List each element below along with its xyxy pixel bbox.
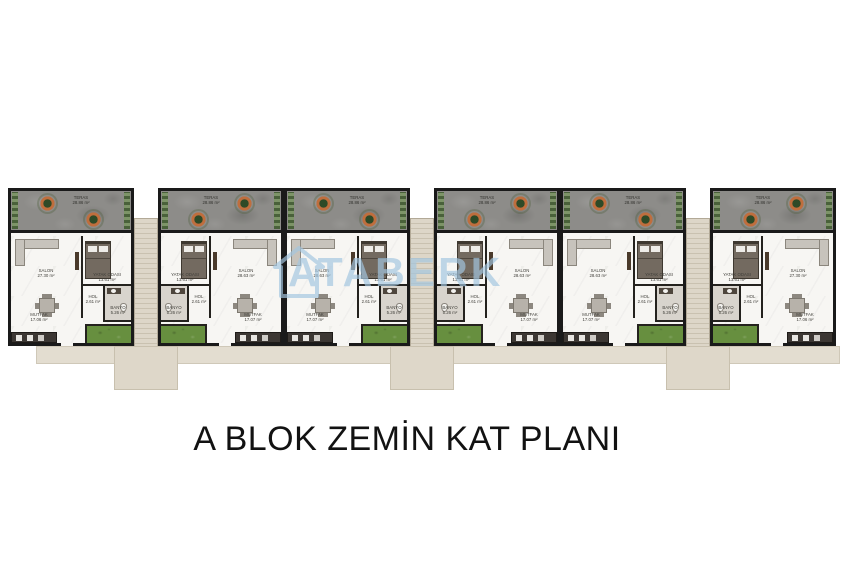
tv-unit [351,252,355,270]
bedroom-label: YATAK ODASI13.61 m² [720,273,755,283]
staircase [134,218,158,347]
bathroom: BANYO5.26 m² [437,286,465,322]
terrace-plant-strip [274,192,280,229]
entry-door [495,343,507,346]
terrace-plant-strip [162,192,168,229]
garden-patch [361,324,407,343]
plant-icon [512,195,529,212]
bathroom-label: BANYO5.26 m² [441,306,460,316]
terrace-label: TERAS28.86 m² [341,196,373,206]
bedroom: YATAK ODASI13.61 m² [713,236,763,286]
entry-path [666,346,730,390]
unit-floor: SALON28.63 m² MUTFAK17.07 m² YATAK ODASI… [437,236,557,343]
terrace-plant-strip [826,192,832,229]
kitchen-label: MUTFAK17.06 m² [786,313,823,323]
dining-table [39,298,55,313]
entry-path [390,346,454,390]
dining-table [789,298,805,313]
tv-unit [489,252,493,270]
terrace-plant-strip [438,192,444,229]
unit-plan-1: TERAS28.86 m² SALON27.30 m² MUTFAK17.06 … [8,188,134,346]
hall: HOL2.61 m² [81,286,103,318]
bedroom: YATAK ODASI13.61 m² [357,236,407,286]
kitchen-counter [11,332,57,343]
terrace: TERAS28.86 m² [287,191,407,233]
dining-table [591,298,607,313]
floorplan-page: TERAS28.86 m² SALON27.30 m² MUTFAK17.06 … [0,0,850,566]
garden-patch [637,324,683,343]
hall: HOL2.61 m² [465,286,487,318]
bathroom: BANYO5.26 m² [655,286,683,322]
dining-table [315,298,331,313]
kitchen-counter [287,332,333,343]
bedroom-label: YATAK ODASI13.61 m² [444,273,479,283]
kitchen-label: MUTFAK17.06 m² [20,313,57,323]
terrace: TERAS28.86 m² [161,191,281,233]
plant-icon [85,211,102,228]
entry-path [114,346,178,390]
unit-plan-5: TERAS28.86 m² SALON28.63 m² MUTFAK17.07 … [560,188,686,346]
bathroom-sink [723,288,737,294]
terrace-label: TERAS28.86 m² [65,196,97,206]
terrace: TERAS28.86 m² [11,191,131,233]
terrace-label: TERAS28.86 m² [195,196,227,206]
terrace: TERAS28.86 m² [437,191,557,233]
bedroom: YATAK ODASI13.61 m² [633,236,683,286]
tv-unit [75,252,79,270]
terrace-label: TERAS28.86 m² [617,196,649,206]
bedroom-label: YATAK ODASI13.61 m² [642,273,677,283]
tv-unit [213,252,217,270]
bathroom-sink [447,288,461,294]
terrace-plant-strip [12,192,18,229]
kitchen-label: MUTFAK17.07 m² [572,313,609,323]
bedroom-label: YATAK ODASI13.61 m² [168,273,203,283]
plant-icon [788,195,805,212]
unit-plan-4: TERAS28.86 m² SALON28.63 m² MUTFAK17.07 … [434,188,560,346]
bathroom-label: BANYO5.26 m² [109,306,128,316]
staircase [410,218,434,347]
tv-unit [765,252,769,270]
hall-label: HOL2.61 m² [189,295,209,305]
entry-door [771,343,783,346]
kitchen-counter [511,332,557,343]
entry-door [613,343,625,346]
terrace-plant-strip [550,192,556,229]
living-room: SALON27.30 m² MUTFAK17.06 m² [11,236,81,343]
living-room-label: SALON28.63 m² [297,269,347,279]
hall: HOL2.61 m² [189,286,211,318]
garden-patch [85,324,131,343]
hall: HOL2.61 m² [633,286,655,318]
hall: HOL2.61 m² [357,286,379,318]
terrace-label: TERAS28.86 m² [471,196,503,206]
plant-icon [466,211,483,228]
tv-unit [627,252,631,270]
bathroom-label: BANYO5.26 m² [165,306,184,316]
unit-floor: SALON27.30 m² MUTFAK17.06 m² YATAK ODASI… [11,236,131,343]
unit-plan-6: TERAS28.86 m² SALON27.30 m² MUTFAK17.06 … [710,188,836,346]
living-room: SALON28.63 m² MUTFAK17.07 m² [563,236,633,343]
terrace-plant-strip [400,192,406,229]
bathroom-sink [171,288,185,294]
unit-plan-2: TERAS28.86 m² SALON28.63 m² MUTFAK17.07 … [158,188,284,346]
living-room-label: SALON27.30 m² [21,269,71,279]
sofa [543,239,553,266]
unit-plan-3: TERAS28.86 m² SALON28.63 m² MUTFAK17.07 … [284,188,410,346]
living-room-label: SALON28.63 m² [573,269,623,279]
unit-floor: SALON27.30 m² MUTFAK17.06 m² YATAK ODASI… [713,236,833,343]
bathroom-sink [659,288,673,294]
living-room: SALON28.63 m² MUTFAK17.07 m² [211,236,281,343]
living-room: SALON28.63 m² MUTFAK17.07 m² [287,236,357,343]
bathroom: BANYO5.26 m² [103,286,131,322]
bathroom-label: BANYO5.26 m² [717,306,736,316]
kitchen-counter [787,332,833,343]
terrace: TERAS28.86 m² [713,191,833,233]
entry-door [337,343,349,346]
kitchen-label: MUTFAK17.07 m² [296,313,333,323]
bedroom: YATAK ODASI13.61 m² [161,236,211,286]
garden-patch [713,324,759,343]
plant-icon [637,211,654,228]
unit-floor: SALON28.63 m² MUTFAK17.07 m² YATAK ODASI… [287,236,407,343]
hall: HOL2.61 m² [741,286,763,318]
staircase [686,218,710,347]
terrace-label: TERAS28.86 m² [747,196,779,206]
bathroom-sink [107,288,121,294]
living-room: SALON27.30 m² MUTFAK17.06 m² [763,236,833,343]
bathroom-sink [383,288,397,294]
terrace-plant-strip [714,192,720,229]
kitchen-counter [563,332,609,343]
hall-label: HOL2.61 m² [83,295,103,305]
entry-door [61,343,73,346]
bedroom-label: YATAK ODASI13.61 m² [90,273,125,283]
plant-icon [39,195,56,212]
hall-label: HOL2.61 m² [465,295,485,305]
kitchen-counter [235,332,281,343]
bedroom-label: YATAK ODASI13.61 m² [366,273,401,283]
living-room-label: SALON27.30 m² [773,269,823,279]
bedroom: YATAK ODASI13.61 m² [437,236,487,286]
living-room-label: SALON28.63 m² [497,269,547,279]
living-room-label: SALON28.63 m² [221,269,271,279]
plant-icon [361,211,378,228]
plant-icon [236,195,253,212]
plant-icon [742,211,759,228]
terrace-plant-strip [676,192,682,229]
hall-label: HOL2.61 m² [359,295,379,305]
bathroom-label: BANYO5.26 m² [661,306,680,316]
entry-door [219,343,231,346]
dining-table [237,298,253,313]
sofa [567,239,577,266]
kitchen-label: MUTFAK17.07 m² [234,313,271,323]
hall-label: HOL2.61 m² [635,295,655,305]
unit-floor: SALON28.63 m² MUTFAK17.07 m² YATAK ODASI… [161,236,281,343]
dining-table [513,298,529,313]
kitchen-label: MUTFAK17.07 m² [510,313,547,323]
terrace-plant-strip [564,192,570,229]
sofa [267,239,277,266]
bathroom-label: BANYO5.26 m² [385,306,404,316]
plant-icon [591,195,608,212]
plant-icon [315,195,332,212]
bathroom: BANYO5.26 m² [379,286,407,322]
sofa [819,239,829,266]
bathroom: BANYO5.26 m² [161,286,189,322]
sofa [291,239,301,266]
plant-icon [190,211,207,228]
terrace-plant-strip [288,192,294,229]
garden-patch [437,324,483,343]
garden-patch [161,324,207,343]
terrace: TERAS28.86 m² [563,191,683,233]
terrace-plant-strip [124,192,130,229]
living-room: SALON28.63 m² MUTFAK17.07 m² [487,236,557,343]
page-title: A BLOK ZEMİN KAT PLANI [12,420,802,459]
sofa [15,239,25,266]
bathroom: BANYO5.26 m² [713,286,741,322]
bedroom: YATAK ODASI13.61 m² [81,236,131,286]
unit-floor: SALON28.63 m² MUTFAK17.07 m² YATAK ODASI… [563,236,683,343]
hall-label: HOL2.61 m² [741,295,761,305]
